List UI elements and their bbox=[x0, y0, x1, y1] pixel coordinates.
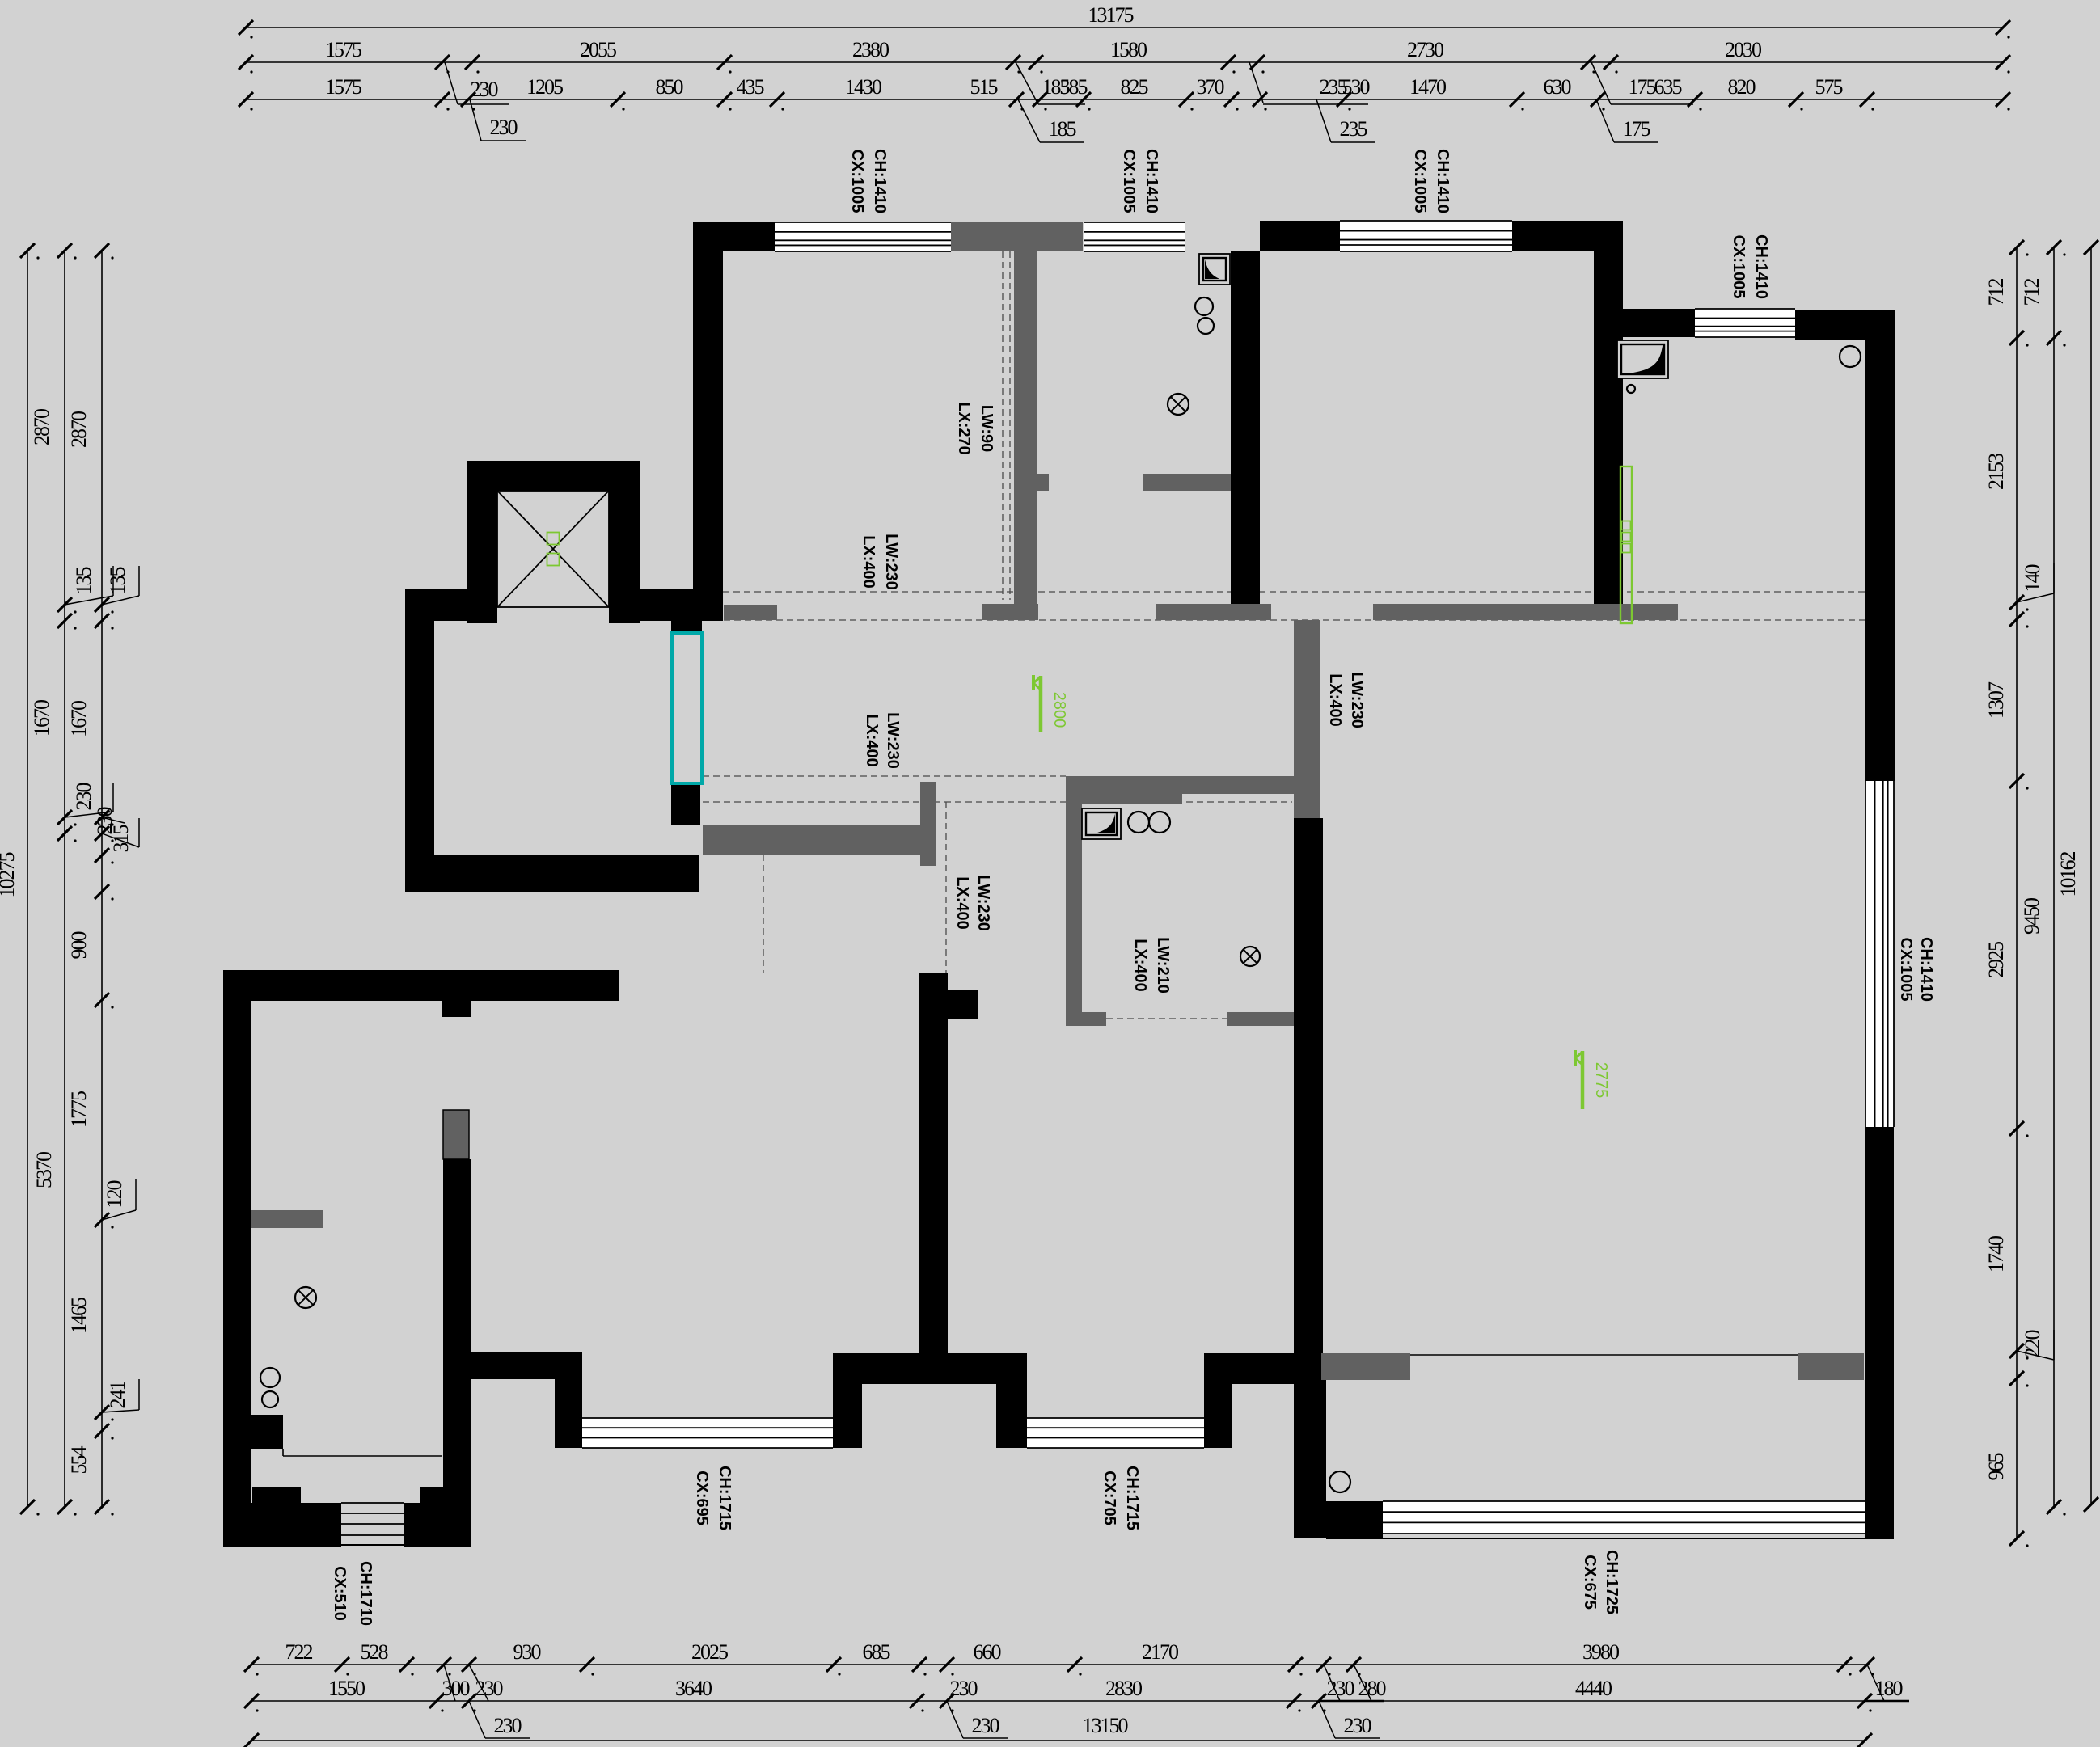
svg-text:CH:1410: CH:1410 bbox=[1434, 149, 1451, 213]
svg-text:CH:1410: CH:1410 bbox=[1917, 937, 1935, 1002]
svg-text:2830: 2830 bbox=[1105, 1677, 1143, 1700]
svg-text:CH:1715: CH:1715 bbox=[716, 1466, 733, 1530]
svg-text:3640: 3640 bbox=[675, 1677, 712, 1700]
svg-text:2800: 2800 bbox=[1050, 692, 1068, 728]
svg-text:712: 712 bbox=[2020, 279, 2043, 306]
svg-text:4440: 4440 bbox=[1575, 1677, 1612, 1700]
svg-text:LX:400: LX:400 bbox=[1131, 939, 1149, 992]
svg-text:CX:1005: CX:1005 bbox=[1120, 150, 1138, 213]
svg-text:1670: 1670 bbox=[30, 699, 53, 736]
svg-text:175: 175 bbox=[1629, 75, 1656, 99]
svg-text:575: 575 bbox=[1815, 75, 1843, 99]
svg-text:2025: 2025 bbox=[691, 1640, 728, 1664]
svg-text:230: 230 bbox=[1344, 1714, 1372, 1737]
svg-text:515: 515 bbox=[970, 75, 998, 99]
svg-text:3980: 3980 bbox=[1582, 1640, 1620, 1664]
svg-text:370: 370 bbox=[1197, 75, 1225, 99]
svg-text:LX:400: LX:400 bbox=[860, 535, 877, 589]
svg-text:LW:230: LW:230 bbox=[884, 712, 902, 769]
svg-text:635: 635 bbox=[1654, 75, 1682, 99]
svg-text:13175: 13175 bbox=[1088, 3, 1134, 27]
svg-text:120: 120 bbox=[103, 1180, 126, 1209]
svg-text:385: 385 bbox=[1060, 75, 1088, 99]
svg-text:280: 280 bbox=[1358, 1677, 1387, 1700]
svg-text:LX:270: LX:270 bbox=[955, 402, 973, 455]
svg-text:2153: 2153 bbox=[1984, 454, 2008, 490]
svg-text:175: 175 bbox=[1623, 117, 1650, 141]
svg-text:CH:1410: CH:1410 bbox=[1143, 149, 1160, 213]
svg-text:180: 180 bbox=[1875, 1677, 1904, 1700]
svg-text:230: 230 bbox=[471, 78, 499, 101]
svg-text:2030: 2030 bbox=[1725, 38, 1762, 61]
svg-text:530: 530 bbox=[1342, 75, 1371, 99]
svg-text:2870: 2870 bbox=[67, 411, 91, 448]
svg-text:930: 930 bbox=[513, 1640, 542, 1664]
svg-text:CX:1005: CX:1005 bbox=[1897, 938, 1915, 1002]
svg-text:1205: 1205 bbox=[526, 75, 563, 99]
svg-text:CX:1005: CX:1005 bbox=[848, 150, 866, 213]
svg-text:10275: 10275 bbox=[0, 853, 19, 898]
svg-text:235: 235 bbox=[1340, 117, 1367, 141]
svg-text:2730: 2730 bbox=[1407, 38, 1444, 61]
svg-text:CX:1005: CX:1005 bbox=[1411, 150, 1429, 213]
svg-text:850: 850 bbox=[656, 75, 684, 99]
svg-text:230: 230 bbox=[972, 1714, 1000, 1737]
svg-text:CH:1410: CH:1410 bbox=[871, 149, 889, 213]
svg-text:820: 820 bbox=[1728, 75, 1756, 99]
svg-text:965: 965 bbox=[1984, 1454, 2008, 1481]
svg-text:825: 825 bbox=[1121, 75, 1148, 99]
svg-text:554: 554 bbox=[67, 1446, 91, 1475]
svg-text:CH:1410: CH:1410 bbox=[1752, 234, 1770, 299]
svg-text:2380: 2380 bbox=[852, 38, 889, 61]
svg-text:9450: 9450 bbox=[2020, 897, 2043, 935]
svg-text:LX:400: LX:400 bbox=[1326, 673, 1344, 727]
svg-text:2925: 2925 bbox=[1984, 942, 2008, 978]
svg-text:315: 315 bbox=[109, 825, 133, 853]
svg-text:220: 220 bbox=[2021, 1330, 2044, 1358]
svg-text:135: 135 bbox=[106, 568, 129, 595]
svg-text:2775: 2775 bbox=[1592, 1062, 1610, 1099]
svg-text:2055: 2055 bbox=[580, 38, 616, 61]
svg-text:LW:230: LW:230 bbox=[974, 875, 992, 931]
svg-text:1430: 1430 bbox=[845, 75, 882, 99]
svg-text:135: 135 bbox=[72, 568, 95, 595]
svg-text:230: 230 bbox=[72, 783, 95, 811]
svg-text:435: 435 bbox=[737, 75, 764, 99]
svg-text:LX:400: LX:400 bbox=[863, 714, 881, 767]
svg-text:241: 241 bbox=[106, 1382, 129, 1409]
svg-text:CX:675: CX:675 bbox=[1581, 1555, 1599, 1610]
svg-text:LW:230: LW:230 bbox=[882, 534, 900, 590]
svg-text:CX:1005: CX:1005 bbox=[1730, 235, 1747, 299]
svg-text:528: 528 bbox=[361, 1640, 389, 1664]
svg-text:140: 140 bbox=[2021, 564, 2044, 593]
svg-text:1470: 1470 bbox=[1409, 75, 1447, 99]
svg-text:230: 230 bbox=[494, 1714, 522, 1737]
svg-text:1465: 1465 bbox=[67, 1298, 91, 1334]
svg-text:722: 722 bbox=[285, 1640, 313, 1664]
svg-text:LX:400: LX:400 bbox=[953, 876, 971, 930]
svg-text:1575: 1575 bbox=[325, 38, 361, 61]
svg-text:5370: 5370 bbox=[32, 1151, 56, 1188]
svg-text:CH:1715: CH:1715 bbox=[1123, 1466, 1141, 1530]
svg-text:630: 630 bbox=[1544, 75, 1572, 99]
svg-text:230: 230 bbox=[950, 1677, 978, 1700]
svg-text:230: 230 bbox=[490, 116, 518, 139]
svg-text:1550: 1550 bbox=[328, 1677, 365, 1700]
svg-text:10162: 10162 bbox=[2056, 852, 2080, 897]
svg-text:685: 685 bbox=[863, 1640, 890, 1664]
svg-text:LW:90: LW:90 bbox=[978, 405, 995, 453]
svg-text:300: 300 bbox=[442, 1677, 471, 1700]
svg-text:1575: 1575 bbox=[325, 75, 361, 99]
svg-text:230: 230 bbox=[475, 1677, 504, 1700]
svg-text:LW:210: LW:210 bbox=[1154, 937, 1172, 994]
svg-text:1580: 1580 bbox=[1110, 38, 1147, 61]
svg-text:CX:705: CX:705 bbox=[1101, 1471, 1118, 1525]
svg-text:1670: 1670 bbox=[67, 700, 91, 737]
svg-text:185: 185 bbox=[1049, 117, 1076, 141]
svg-text:13150: 13150 bbox=[1083, 1714, 1129, 1737]
svg-text:CH:1710: CH:1710 bbox=[357, 1561, 374, 1626]
svg-text:CX:510: CX:510 bbox=[331, 1566, 349, 1621]
svg-text:LW:230: LW:230 bbox=[1348, 672, 1366, 728]
svg-text:712: 712 bbox=[1984, 279, 2008, 306]
svg-text:900: 900 bbox=[67, 931, 91, 960]
svg-text:CX:695: CX:695 bbox=[693, 1471, 711, 1525]
svg-text:2170: 2170 bbox=[1142, 1640, 1179, 1664]
svg-text:1775: 1775 bbox=[67, 1091, 91, 1128]
svg-text:1307: 1307 bbox=[1984, 681, 2008, 719]
svg-text:CH:1725: CH:1725 bbox=[1603, 1550, 1620, 1614]
svg-text:1740: 1740 bbox=[1984, 1235, 2008, 1272]
svg-text:660: 660 bbox=[974, 1640, 1002, 1664]
svg-text:2870: 2870 bbox=[30, 408, 53, 445]
